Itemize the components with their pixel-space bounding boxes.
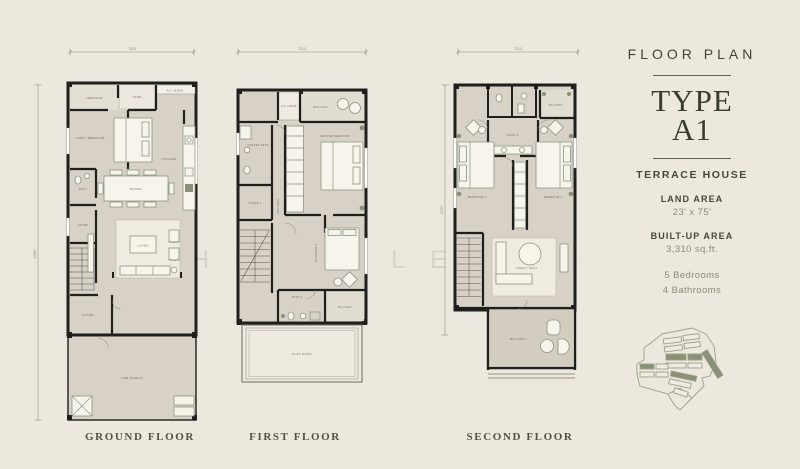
room-label: DINING bbox=[130, 187, 143, 191]
room-label: BALCONY bbox=[338, 306, 352, 309]
window bbox=[365, 238, 368, 274]
info-sidebar: FLOOR PLAN TYPE A1 TERRACE HOUSE LAND AR… bbox=[612, 46, 772, 298]
room-label: BATH bbox=[79, 188, 87, 191]
divider bbox=[653, 75, 731, 76]
room-label: BALCONY bbox=[549, 104, 563, 107]
room-label: BALCONY bbox=[313, 105, 328, 109]
room-label: LIVING bbox=[137, 244, 149, 248]
page-title: FLOOR PLAN bbox=[612, 46, 772, 62]
window bbox=[237, 133, 240, 155]
room-label: FLAT ROOF bbox=[292, 352, 312, 356]
room-label: WALKWAY bbox=[277, 199, 280, 214]
room-label: BATH 3 bbox=[508, 133, 519, 137]
room-yard: YARD bbox=[120, 85, 154, 108]
dim-depth-label: 22860 bbox=[33, 249, 37, 259]
dim-width-label: 7010 bbox=[298, 47, 306, 51]
window bbox=[365, 148, 368, 188]
dim-width-label: 7010 bbox=[514, 47, 522, 51]
type-value: A1 bbox=[612, 115, 772, 144]
ground-floor-title: GROUND FLOOR bbox=[55, 431, 225, 443]
second-floor-plan: 7010 13720 BALCONY bbox=[430, 38, 610, 440]
divider bbox=[653, 158, 731, 159]
room-store: STORE bbox=[78, 224, 88, 227]
first-floor-plan: 7010 A/C LEDGE BALCONY bbox=[225, 38, 405, 440]
room-label: FAMILY HALL bbox=[516, 266, 537, 270]
dim-width-label: 7010 bbox=[128, 47, 136, 51]
room-label: BATH 2 bbox=[292, 296, 303, 299]
room-label: CAR PORCH bbox=[121, 376, 143, 380]
land-area-label: LAND AREA bbox=[612, 194, 772, 204]
room-balcony-front: BALCONY bbox=[302, 92, 364, 120]
type-label: TYPE bbox=[612, 86, 772, 115]
room-foyer: FOYER bbox=[82, 313, 93, 317]
room-label: FOYER bbox=[82, 313, 93, 317]
room-label: GUEST BEDROOM bbox=[75, 136, 105, 140]
room-label: BEDROOM 4 bbox=[544, 196, 562, 199]
dimension-lines: 7010 bbox=[237, 47, 368, 56]
wardrobe bbox=[287, 126, 304, 212]
room-label: TERRACE bbox=[86, 96, 103, 100]
room-balcony-rear: BALCONY bbox=[327, 292, 364, 321]
built-up-label: BUILT-UP AREA bbox=[612, 231, 772, 241]
room-label: MASTER BATH bbox=[248, 144, 269, 147]
dim-depth-label: 13720 bbox=[440, 205, 444, 215]
wardrobe bbox=[515, 162, 526, 228]
window bbox=[67, 218, 70, 236]
land-area-value: 23' x 75' bbox=[612, 207, 772, 218]
window bbox=[574, 138, 577, 168]
room-store2: STORE 2 bbox=[248, 202, 261, 205]
room-label: MASTER BEDROOM bbox=[321, 135, 350, 138]
brochure-page: CHLOE LEONG 7010 22860 TERRACE YARD A/C … bbox=[0, 0, 800, 469]
room-balcony-front: BALCONY bbox=[540, 90, 573, 118]
room-label: KITCHEN bbox=[162, 157, 177, 161]
bedrooms-count: 5 Bedrooms bbox=[612, 269, 772, 284]
bathrooms-count: 4 Bathrooms bbox=[612, 284, 772, 299]
window bbox=[454, 138, 457, 168]
first-floor-title: FIRST FLOOR bbox=[210, 431, 380, 443]
site-plan bbox=[630, 324, 734, 420]
room-label: BEDROOM 3 bbox=[468, 196, 486, 199]
room-walkway: WALKWAY bbox=[277, 199, 280, 214]
house-type: TERRACE HOUSE bbox=[612, 169, 772, 181]
room-ac-ledge: A/C LEDGE bbox=[278, 92, 300, 120]
window bbox=[67, 128, 70, 154]
built-up-value: 3,310 sq.ft. bbox=[612, 244, 772, 255]
room-label: A/C LEDGE bbox=[281, 105, 297, 108]
room-ac-ledge: A/C LEDGE bbox=[156, 85, 195, 94]
room-label: BALCONY bbox=[510, 337, 526, 341]
room-terrace: TERRACE bbox=[70, 85, 118, 110]
room-label: STORE 2 bbox=[248, 202, 261, 205]
room-label: STORE bbox=[78, 224, 88, 227]
room-label: YARD bbox=[132, 95, 142, 99]
window bbox=[454, 188, 457, 208]
second-floor-title: SECOND FLOOR bbox=[435, 431, 605, 443]
room-label: A/C LEDGE bbox=[167, 88, 184, 92]
ground-floor-plan: 7010 22860 TERRACE YARD A/C LEDGE bbox=[28, 38, 208, 440]
room-label: BEDROOM 2 bbox=[315, 244, 318, 262]
flat-roof: FLAT ROOF bbox=[242, 325, 362, 382]
